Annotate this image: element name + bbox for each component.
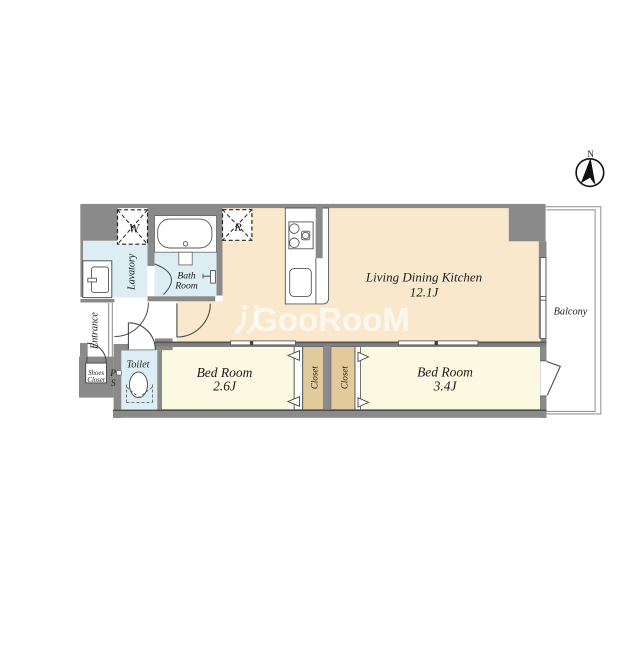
svg-text:Lavatory: Lavatory [127,253,138,291]
svg-text:GooRooM: GooRooM [252,301,410,338]
svg-text:Shoes: Shoes [88,370,104,377]
svg-text:Balcony: Balcony [554,307,588,318]
svg-text:Closet: Closet [87,377,105,384]
svg-text:N: N [587,150,594,160]
svg-text:Closet: Closet [340,366,350,390]
svg-text:2.6J: 2.6J [213,379,237,394]
svg-text:Entrance: Entrance [89,312,100,350]
svg-text:S: S [111,379,116,389]
svg-text:12.1J: 12.1J [410,285,440,300]
svg-text:Bed Room: Bed Room [417,364,473,379]
svg-text:3.4J: 3.4J [433,378,458,393]
svg-text:Closet: Closet [309,366,319,390]
svg-text:Room: Room [174,280,198,291]
svg-text:P: P [109,369,116,379]
svg-text:R: R [233,220,242,234]
svg-text:Living Dining Kitchen: Living Dining Kitchen [365,270,482,285]
svg-text:Toilet: Toilet [126,359,150,370]
